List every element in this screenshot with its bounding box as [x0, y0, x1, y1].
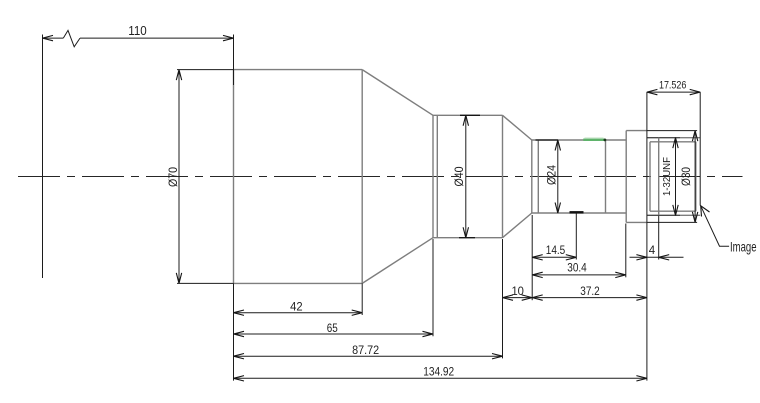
svg-text:42: 42 — [290, 302, 303, 314]
svg-text:65: 65 — [327, 323, 338, 335]
svg-text:30.4: 30.4 — [567, 263, 587, 275]
svg-text:Ø40: Ø40 — [452, 166, 466, 186]
svg-text:4: 4 — [649, 245, 656, 257]
svg-text:10: 10 — [511, 286, 524, 298]
svg-text:134.92: 134.92 — [423, 367, 454, 379]
svg-text:87.72: 87.72 — [352, 345, 379, 357]
svg-text:17.526: 17.526 — [659, 79, 687, 91]
svg-text:110: 110 — [128, 24, 147, 38]
svg-text:Ø30: Ø30 — [679, 167, 693, 186]
svg-text:14.5: 14.5 — [546, 245, 566, 257]
svg-text:Ø24: Ø24 — [544, 165, 558, 185]
svg-text:Image: Image — [730, 239, 757, 255]
svg-text:Ø70: Ø70 — [166, 167, 180, 187]
svg-text:37.2: 37.2 — [580, 286, 600, 298]
svg-text:1-32UNF: 1-32UNF — [661, 157, 673, 196]
